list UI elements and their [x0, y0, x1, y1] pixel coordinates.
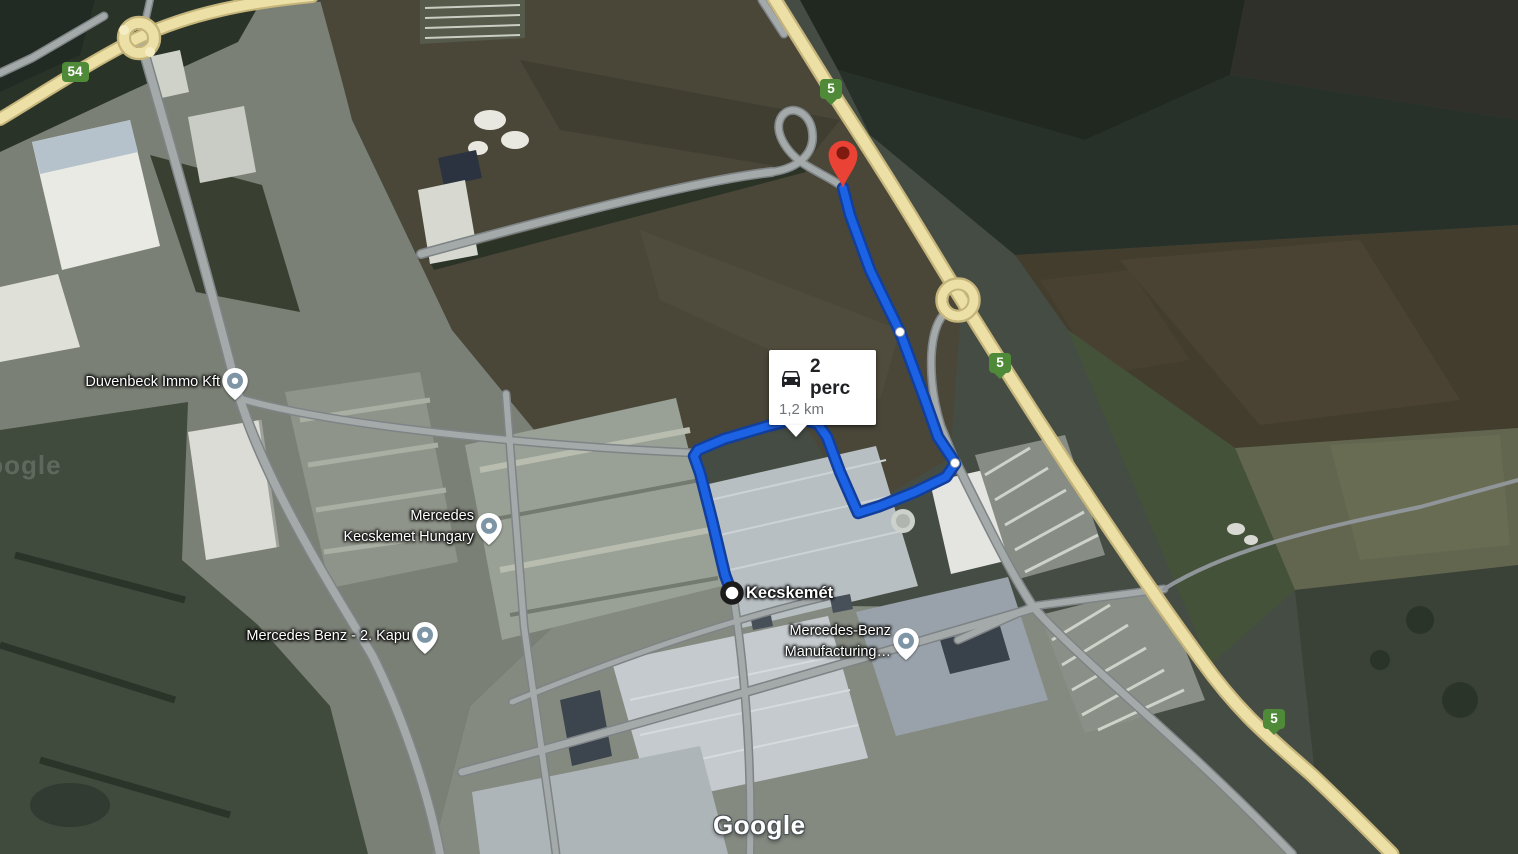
satellite-basemap: [0, 0, 1518, 854]
route-via-dot[interactable]: [896, 328, 905, 337]
route-info-bubble[interactable]: 2 perc 1,2 km: [769, 350, 876, 425]
map-canvas[interactable]: Kecskemét Duvenbeck Immo Kft MercedesKec…: [0, 0, 1518, 854]
route-duration: 2 perc: [810, 356, 865, 400]
road-shield-5: 5: [1263, 709, 1285, 729]
route-distance: 1,2 km: [779, 401, 865, 419]
road-shield-5: 5: [989, 353, 1011, 373]
google-logo[interactable]: Google: [713, 810, 806, 840]
road-shield-54: 54: [62, 62, 89, 82]
route-origin-marker[interactable]: [723, 584, 741, 602]
car-icon: [779, 366, 803, 390]
route-via-dot[interactable]: [951, 459, 960, 468]
bubble-pointer: [785, 425, 807, 437]
road-shield-5: 5: [820, 79, 842, 99]
google-watermark-faint: Google: [0, 450, 62, 480]
